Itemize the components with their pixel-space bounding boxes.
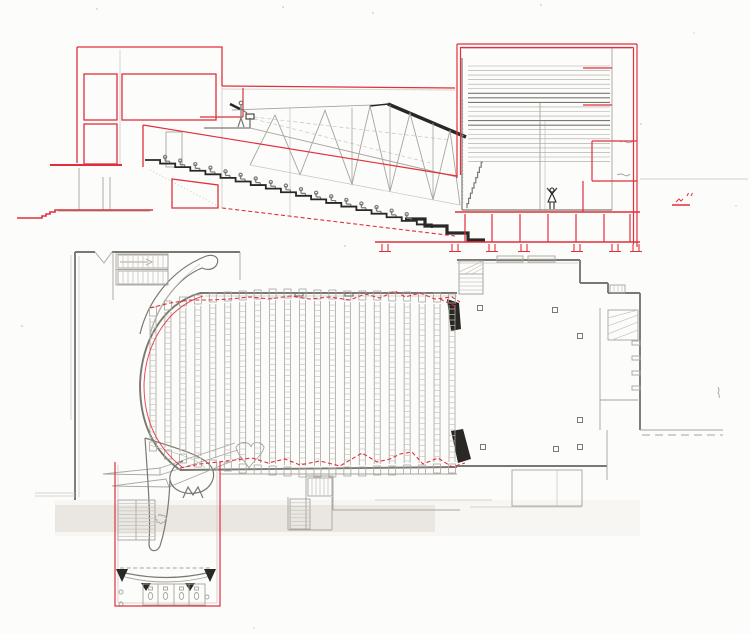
paper-artifacts <box>21 4 736 628</box>
stage-column <box>478 306 483 311</box>
seated-figure <box>284 184 290 192</box>
seated-figure <box>360 202 366 210</box>
stage-column <box>578 445 583 450</box>
seated-figure <box>375 206 381 214</box>
seat-row <box>164 301 171 459</box>
seat-row <box>434 293 441 473</box>
stair-flight <box>459 274 483 294</box>
seated-figure <box>254 177 260 185</box>
performer-figure <box>547 188 557 209</box>
seat-row <box>284 289 291 476</box>
seat-row <box>419 293 426 474</box>
fly-system-lines <box>468 66 610 162</box>
stair-flight <box>118 255 168 268</box>
seat-row <box>329 290 336 477</box>
seated-figure <box>164 155 170 163</box>
seat-row <box>224 292 231 471</box>
seated-figure <box>269 180 275 188</box>
seated-figure <box>390 209 396 217</box>
seated-figure <box>299 188 305 196</box>
seat-row <box>314 290 321 477</box>
level-marker <box>672 193 693 205</box>
seat-row <box>389 292 396 475</box>
seat-row <box>404 292 411 474</box>
seated-figure <box>239 173 245 181</box>
foundation-pier-marks <box>379 244 642 252</box>
stage-column <box>553 308 558 313</box>
seat-row <box>179 297 186 463</box>
seat-row <box>299 289 306 477</box>
seated-figure <box>194 163 200 171</box>
seat-row <box>344 291 351 476</box>
seat-row <box>254 290 261 474</box>
seat-row <box>194 295 201 467</box>
stage-columns <box>478 306 583 452</box>
stage-column <box>578 418 583 423</box>
section-pencil-layer <box>58 48 748 398</box>
seated-figure <box>345 198 351 206</box>
seated-figure <box>315 191 321 199</box>
stage-column <box>481 445 486 450</box>
plan-view <box>35 252 723 606</box>
basement-columns <box>465 214 630 242</box>
seat-row <box>359 291 366 476</box>
stage-column <box>578 334 583 339</box>
projectionist-figure <box>238 101 254 127</box>
stair-flight <box>308 478 332 496</box>
seated-figure <box>330 195 336 203</box>
seated-audience-figures <box>164 155 412 220</box>
stage-column <box>554 447 559 452</box>
seat-row <box>374 291 381 475</box>
red-dash-bottom <box>180 452 465 468</box>
raked-seating-steps <box>145 160 432 228</box>
seated-figure <box>209 166 215 174</box>
seated-figure <box>224 170 230 178</box>
plan-pencil-layer <box>35 252 723 606</box>
theater-section-and-plan-drawing <box>0 0 750 634</box>
plan-seating <box>150 289 456 477</box>
architectural-drawing-canvas <box>0 0 750 634</box>
seat-row <box>269 289 276 475</box>
seat-row <box>239 291 246 473</box>
stair-flight <box>118 271 168 284</box>
seat-row <box>209 293 216 469</box>
